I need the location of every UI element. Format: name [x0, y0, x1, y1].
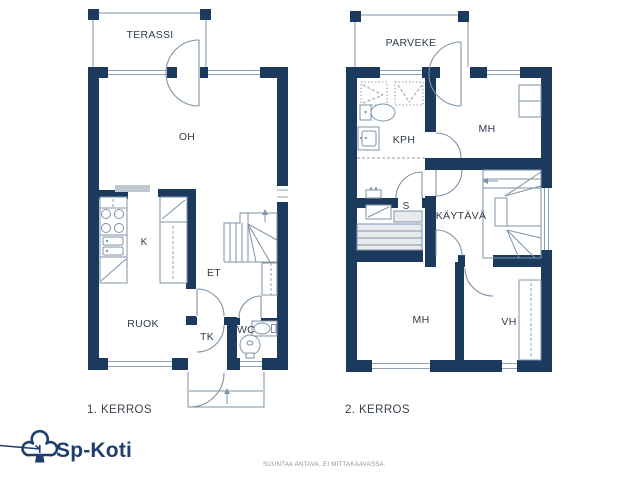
- logo-text: Sp-Koti: [56, 439, 132, 462]
- washbasin-icon: [358, 127, 379, 150]
- room-label-terassi: TERASSI: [126, 29, 173, 41]
- cabinet: [160, 197, 187, 283]
- floor1-caption: 1. KERROS: [87, 404, 152, 416]
- room-label-kaytava: KÄYTÄVÄ: [436, 210, 487, 222]
- bathroom-door-arc: [436, 170, 462, 196]
- entrance-porch: [188, 372, 264, 407]
- shower-icon: [395, 82, 423, 105]
- room-label-vh: VH: [501, 316, 516, 328]
- toilet-icon: [240, 335, 260, 358]
- toilet-icon: [360, 104, 395, 121]
- room-label-ruok: RUOK: [127, 318, 159, 330]
- hall-door-arc: [197, 289, 224, 316]
- floor-plan-page: TERASSI OH K ET RUOK TK WC 1. KERROS: [0, 0, 640, 480]
- kitchen-counter: [100, 185, 150, 283]
- stairs-up-arrow-icon: [262, 209, 268, 222]
- room-label-et: ET: [207, 267, 221, 279]
- room-label-oh: OH: [179, 131, 195, 143]
- bedroom-bottom-door-arc: [436, 230, 462, 256]
- shower-icon: [361, 82, 387, 105]
- staircase-2: [482, 170, 541, 258]
- room-label-s: S: [403, 201, 410, 212]
- room-label-mh-top: MH: [479, 123, 496, 135]
- room-label-tk: TK: [200, 331, 214, 343]
- bedroom-top-door-arc: [436, 133, 461, 158]
- bedroom-closet: [519, 85, 541, 117]
- sp-koti-logo: Sp-Koti: [0, 431, 132, 462]
- washbasin-icon: [366, 187, 381, 198]
- sauna-fixtures: [357, 205, 422, 250]
- sauna-stove-icon: [366, 205, 391, 219]
- floor-plan-2: PARVEKE KPH MH S KÄYTÄVÄ MH VH 2. KERROS: [345, 11, 552, 416]
- room-label-mh-bottom: MH: [413, 314, 430, 326]
- vh-closet: [519, 280, 541, 360]
- sauna-bench: [357, 224, 422, 250]
- room-label-parveke: PARVEKE: [386, 37, 437, 49]
- disclaimer-text: SUUNTAA ANTAVA, EI MITTAKAAVASSA.: [263, 462, 386, 468]
- staircase-1: [224, 209, 277, 295]
- room-label-k: K: [141, 237, 148, 248]
- tree-icon: [0, 431, 57, 462]
- sauna-door-arc: [396, 172, 422, 198]
- entry-arrow-icon: [224, 388, 230, 404]
- room-label-wc: WC: [237, 324, 255, 336]
- wc-door-arc: [239, 296, 261, 318]
- room-label-kph: KPH: [393, 134, 416, 146]
- floor-plan-1: TERASSI OH K ET RUOK TK WC 1. KERROS: [87, 9, 288, 416]
- washbasin-icon: [252, 321, 277, 336]
- floor2-caption: 2. KERROS: [345, 404, 410, 416]
- vh-door-arc: [465, 268, 493, 296]
- sauna-bench: [394, 211, 422, 222]
